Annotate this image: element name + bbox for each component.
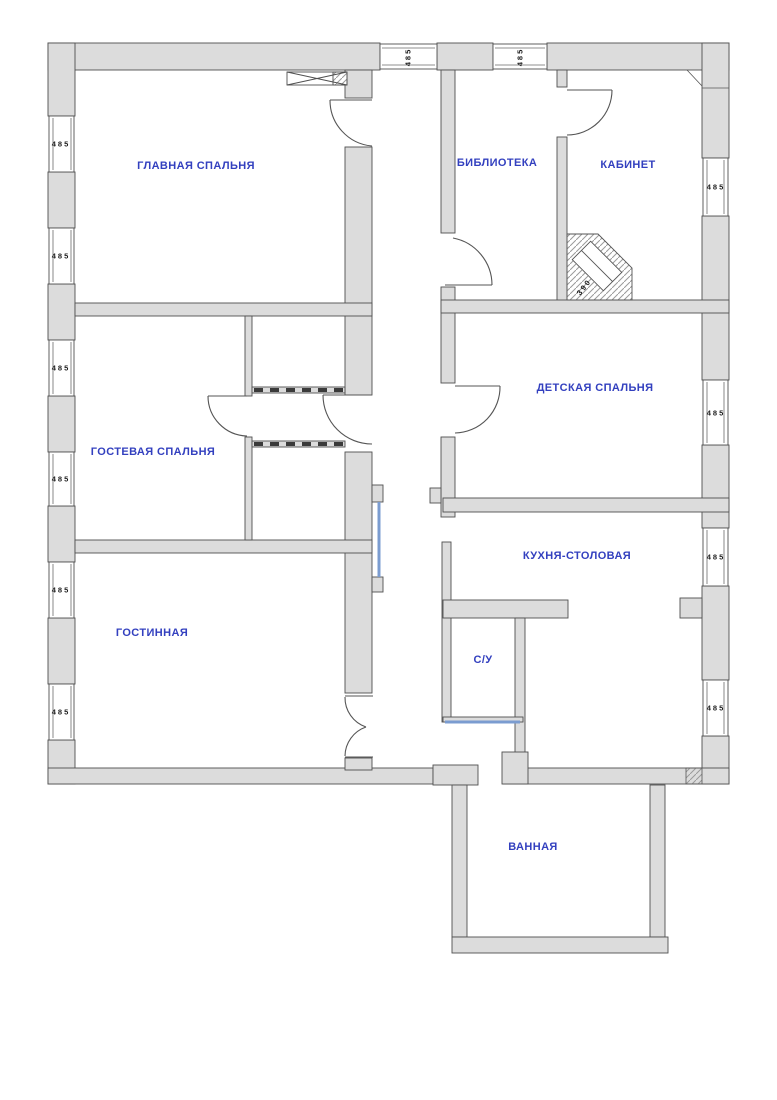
- wall: [245, 437, 252, 540]
- wall: [345, 452, 372, 693]
- wall: [502, 752, 528, 784]
- wall: [48, 43, 380, 70]
- wall: [433, 765, 478, 785]
- floor-plan-drawing: [0, 0, 777, 1100]
- wall: [650, 785, 665, 937]
- door-kids-bedroom: [455, 386, 500, 433]
- wall: [441, 70, 455, 233]
- door-library: [445, 238, 492, 285]
- wall: [252, 387, 345, 393]
- wall: [48, 506, 75, 562]
- wall: [245, 316, 252, 396]
- wall: [345, 147, 372, 395]
- doors: [208, 90, 612, 757]
- wall: [702, 43, 729, 158]
- walls: [48, 43, 729, 953]
- wall: [48, 284, 75, 340]
- door-main-bedroom: [330, 100, 372, 146]
- wall: [452, 785, 467, 937]
- wall: [702, 216, 729, 380]
- wall: [430, 488, 441, 503]
- wall: [345, 70, 372, 98]
- wall: [372, 485, 383, 502]
- wall: [48, 396, 75, 452]
- wardrobe-tracks: [254, 390, 343, 444]
- wall: [443, 498, 729, 512]
- door-guest-bedroom: [208, 396, 247, 436]
- wall: [252, 441, 345, 447]
- double-door-living-bottom: [345, 727, 373, 757]
- wall: [442, 542, 451, 722]
- wall: [48, 172, 75, 228]
- lintel-box: [287, 72, 347, 85]
- wall: [702, 586, 729, 680]
- wall: [48, 43, 75, 116]
- fireplace: [567, 234, 632, 300]
- wall: [48, 618, 75, 684]
- wall: [680, 598, 702, 618]
- door-study: [567, 90, 612, 135]
- wall: [557, 70, 567, 87]
- wall: [441, 300, 729, 313]
- wall: [75, 303, 372, 316]
- window-glazing-lines: [53, 48, 724, 738]
- wall: [452, 937, 668, 953]
- wall: [557, 137, 567, 303]
- double-door-living-top: [345, 696, 373, 727]
- wall: [345, 758, 372, 770]
- floor-plan: ГЛАВНАЯ СПАЛЬНЯБИБЛИОТЕКАКАБИНЕТГОСТЕВАЯ…: [0, 0, 777, 1100]
- wall: [437, 43, 493, 70]
- wall: [443, 600, 568, 618]
- windows: [49, 44, 728, 740]
- wall: [372, 577, 383, 592]
- wall: [75, 540, 372, 553]
- wall: [48, 768, 433, 784]
- wall: [515, 618, 525, 758]
- wall: [702, 445, 729, 528]
- door-closet-lobby: [323, 395, 372, 444]
